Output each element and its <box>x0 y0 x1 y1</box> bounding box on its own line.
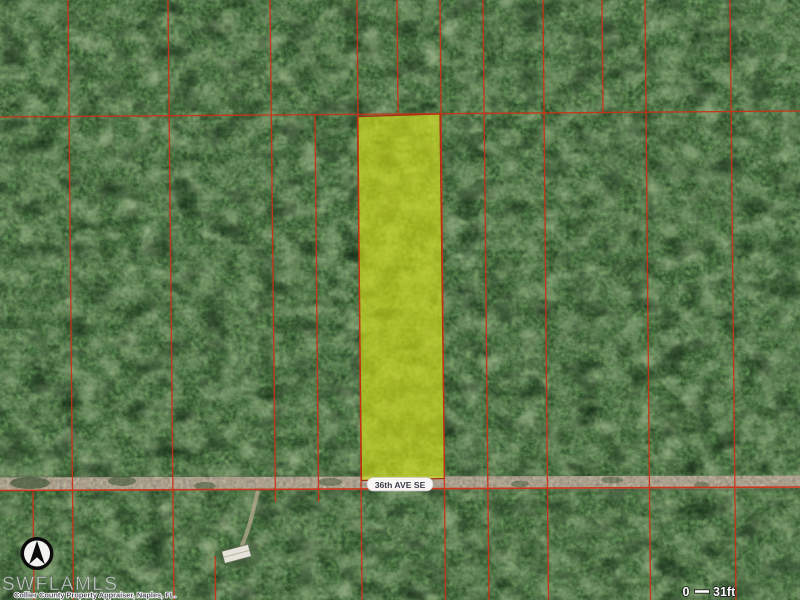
tree-shadow <box>108 476 136 486</box>
tree-shadow <box>318 478 342 486</box>
highlighted-parcel[interactable] <box>358 114 445 481</box>
road-label-text: 36th AVE SE <box>375 480 426 490</box>
tree-shadow <box>601 477 623 484</box>
scale-start-label: 0 <box>683 585 690 599</box>
tree-shadow <box>511 481 529 488</box>
tree-shadow <box>10 477 50 489</box>
scale-end-label: 31ft <box>713 585 736 599</box>
road-label: 36th AVE SE <box>367 478 433 492</box>
aerial-map[interactable]: 36th AVE SE SWFLAMLS Collier County Prop… <box>0 0 800 600</box>
compass-north-icon <box>21 537 54 570</box>
attribution: Collier County Property Appraiser, Naple… <box>14 591 176 600</box>
map-viewport: 36th AVE SE SWFLAMLS Collier County Prop… <box>0 0 800 600</box>
parcel-boundary-line <box>215 556 216 600</box>
scale-bar-segment <box>695 590 710 593</box>
